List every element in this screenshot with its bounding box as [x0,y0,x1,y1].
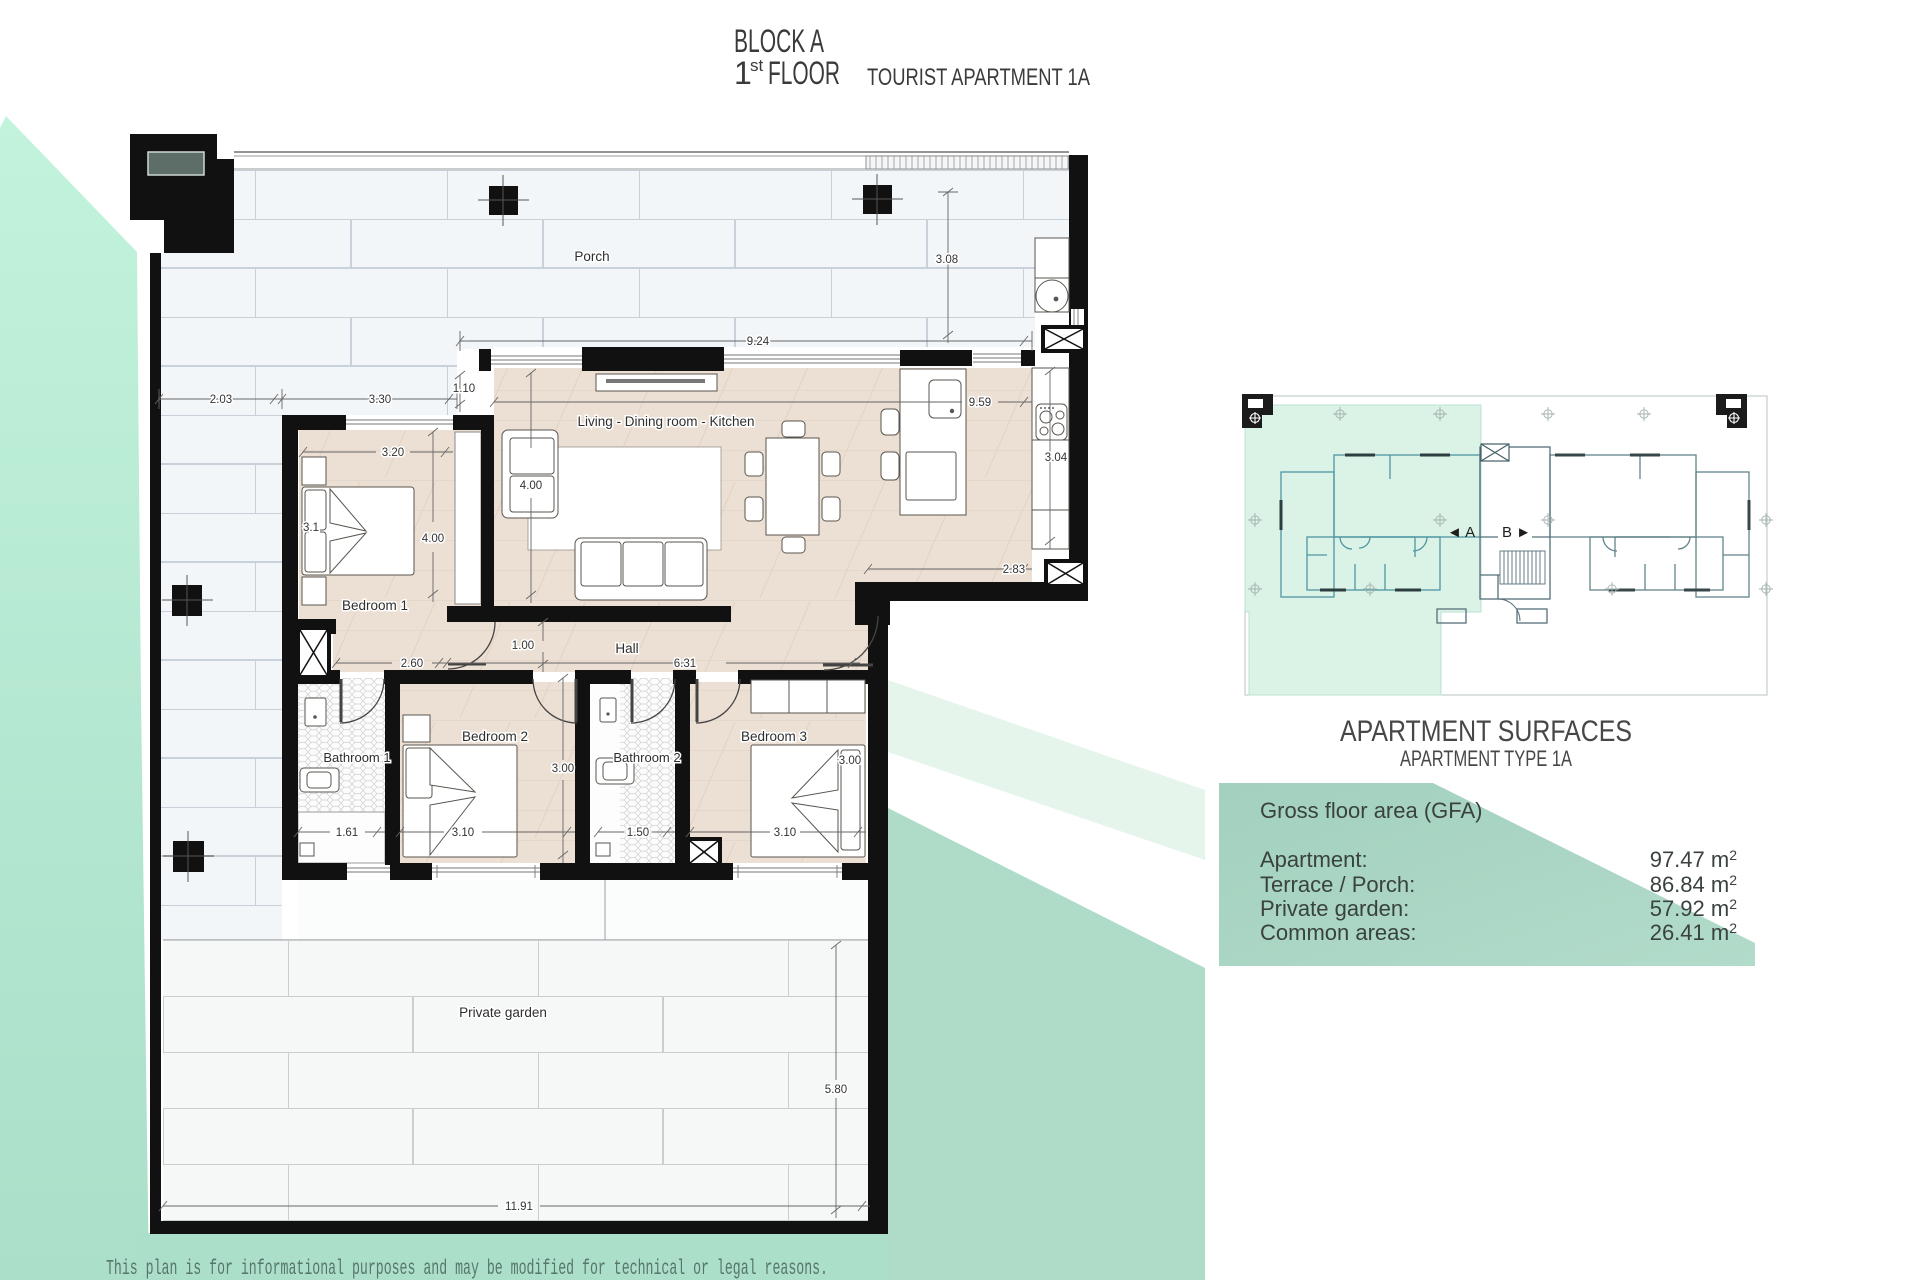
svg-text:3.20: 3.20 [382,447,404,459]
svg-text:◄ A: ◄ A [1447,524,1475,541]
svg-text:Terrace / Porch:: Terrace / Porch: [1260,872,1415,897]
svg-text:4.00: 4.00 [520,480,542,492]
svg-text:Bathroom 2: Bathroom 2 [613,750,680,765]
svg-text:86.84 m2: 86.84 m2 [1650,872,1738,897]
svg-text:Apartment:: Apartment: [1260,847,1368,872]
svg-text:This plan is for informational: This plan is for informational purposes … [106,1258,828,1280]
svg-text:11.91: 11.91 [505,1201,533,1213]
svg-text:BLOCK A: BLOCK A [734,23,824,59]
svg-text:2.60: 2.60 [401,658,423,670]
svg-text:Bedroom 2: Bedroom 2 [462,729,528,744]
svg-text:3.00: 3.00 [552,763,574,775]
svg-text:1.10: 1.10 [453,383,475,395]
svg-text:Bedroom 1: Bedroom 1 [342,598,408,613]
svg-text:3.10: 3.10 [774,827,796,839]
svg-text:5.80: 5.80 [825,1084,847,1096]
svg-text:3.10: 3.10 [452,827,474,839]
svg-text:3.1: 3.1 [303,522,319,534]
svg-text:2.83: 2.83 [1003,564,1025,576]
svg-text:1.50: 1.50 [627,827,649,839]
svg-text:TOURIST APARTMENT 1A: TOURIST APARTMENT 1A [867,64,1090,91]
svg-text:3.04: 3.04 [1045,452,1068,464]
svg-text:Living - Dining room - Kitchen: Living - Dining room - Kitchen [577,414,754,429]
svg-text:97.47 m2: 97.47 m2 [1650,847,1738,872]
svg-text:B ►: B ► [1502,524,1531,541]
svg-text:9.24: 9.24 [747,336,770,348]
svg-text:1.00: 1.00 [512,640,534,652]
svg-text:Hall: Hall [615,641,638,656]
svg-text:1.61: 1.61 [336,827,358,839]
svg-text:Bedroom 3: Bedroom 3 [741,729,807,744]
svg-text:26.41 m2: 26.41 m2 [1650,920,1738,945]
svg-text:APARTMENT SURFACES: APARTMENT SURFACES [1340,715,1632,748]
svg-text:57.92 m2: 57.92 m2 [1650,896,1738,921]
svg-text:Bathroom 1: Bathroom 1 [323,750,390,765]
svg-text:9.59: 9.59 [969,397,991,409]
svg-text:6.31: 6.31 [674,658,696,670]
svg-text:APARTMENT TYPE 1A: APARTMENT TYPE 1A [1400,746,1572,771]
svg-text:Gross floor area (GFA): Gross floor area (GFA) [1260,798,1483,823]
svg-text:st: st [750,56,764,75]
svg-text:FLOOR: FLOOR [768,55,840,91]
svg-text:Private garden: Private garden [459,1005,547,1020]
svg-text:4.00: 4.00 [422,533,444,545]
svg-text:3.30: 3.30 [369,394,391,406]
svg-text:3.00: 3.00 [839,755,861,767]
svg-text:2.03: 2.03 [210,394,232,406]
svg-text:Common areas:: Common areas: [1260,920,1417,945]
svg-text:Private garden:: Private garden: [1260,896,1409,921]
svg-text:Porch: Porch [574,249,609,264]
svg-text:3.08: 3.08 [936,254,958,266]
